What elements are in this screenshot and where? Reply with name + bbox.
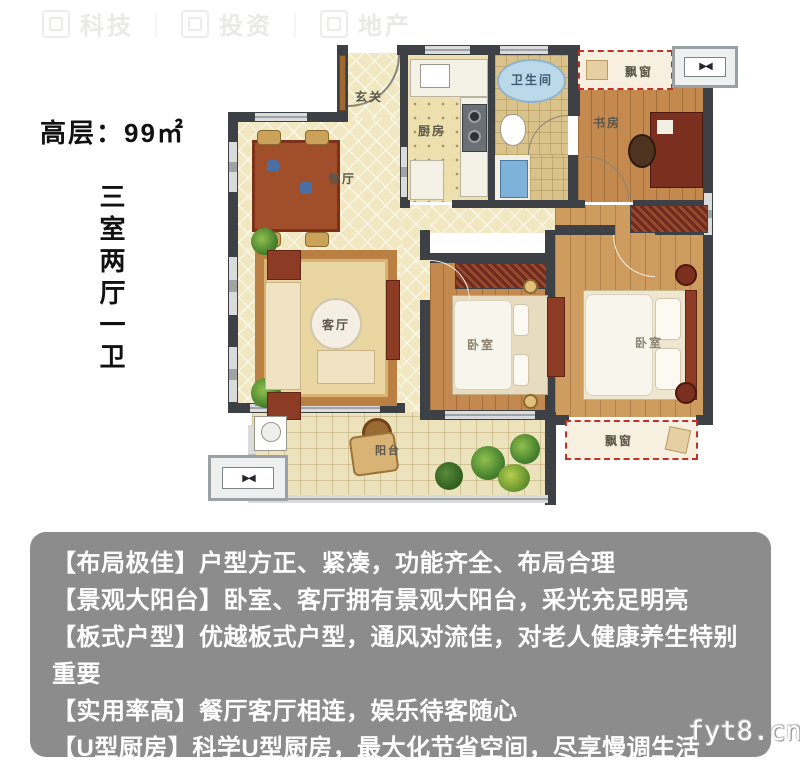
armchair bbox=[267, 250, 301, 280]
pillow bbox=[513, 304, 529, 336]
bedroom-middle-label: 卧室 bbox=[467, 336, 495, 353]
coffee-table bbox=[317, 350, 375, 384]
window bbox=[401, 147, 407, 197]
top-watermark: 科技 ｜ 投资 ｜ 地产 bbox=[42, 6, 412, 41]
wall bbox=[430, 253, 547, 263]
bathroom-label: 卫生间 bbox=[511, 71, 553, 88]
bedside-stool bbox=[675, 382, 697, 404]
bathroom-floor2 bbox=[530, 155, 568, 202]
feature-line: 【实用率高】餐厅客厅相连，娱乐待客随心 bbox=[52, 693, 749, 730]
feature-line: 【U型厨房】科学U型厨房，最大化节省空间，尽享慢调生活 bbox=[52, 730, 749, 767]
bay-window-top-label: 飘窗 bbox=[625, 63, 653, 80]
desk-paper bbox=[657, 120, 673, 134]
pillow bbox=[655, 348, 681, 390]
window bbox=[500, 46, 548, 54]
window bbox=[425, 46, 470, 54]
bedside-lamp bbox=[523, 394, 538, 409]
wall bbox=[488, 55, 495, 202]
page: { "header": { "area_label": "高层：99㎡" }, … bbox=[0, 0, 800, 763]
dining-label: 餐厅 bbox=[328, 170, 356, 187]
stove-burner bbox=[468, 110, 481, 123]
watermark-text: 科技 bbox=[80, 6, 134, 41]
floorplan: 飘窗 飘窗 ▶◀ ▶◀ 客厅 bbox=[205, 42, 721, 510]
table-setting bbox=[267, 160, 279, 172]
watermark-text: 地产 bbox=[358, 6, 412, 41]
plant bbox=[435, 462, 463, 490]
watermark-separator: ｜ bbox=[144, 6, 171, 41]
sofa bbox=[265, 282, 301, 390]
tv-cabinet bbox=[386, 280, 400, 360]
window bbox=[229, 257, 237, 315]
brand-logo-icon bbox=[320, 10, 348, 38]
dining-table bbox=[252, 140, 340, 232]
kitchen-sink bbox=[420, 64, 450, 88]
bay-window-top: 飘窗 bbox=[578, 50, 673, 90]
bedroom-right-label: 卧室 bbox=[635, 334, 663, 351]
watermark-text: 投资 bbox=[219, 6, 273, 41]
washing-machine bbox=[500, 160, 528, 198]
wall bbox=[400, 200, 410, 208]
bedside-lamp bbox=[523, 279, 538, 294]
balcony-label: 阳台 bbox=[375, 442, 401, 458]
plant bbox=[510, 434, 540, 464]
window bbox=[445, 411, 535, 419]
window bbox=[229, 347, 237, 402]
toilet bbox=[500, 114, 526, 146]
wardrobe-right bbox=[630, 205, 708, 233]
area-title: 高层：99㎡ bbox=[40, 113, 185, 150]
living-label: 客厅 bbox=[322, 316, 350, 333]
plant bbox=[498, 464, 530, 492]
site-watermark: fyt8.cn bbox=[688, 716, 800, 747]
study-chair bbox=[628, 134, 656, 168]
wall bbox=[568, 155, 578, 202]
bedside-stool bbox=[675, 264, 697, 286]
living-center-circle: 客厅 bbox=[310, 298, 362, 350]
brand-logo-icon bbox=[42, 10, 70, 38]
wall bbox=[452, 200, 585, 208]
features-panel: 【布局极佳】户型方正、紧凑，功能齐全、布局合理 【景观大阳台】卧室、客厅拥有景观… bbox=[30, 532, 771, 757]
bay-window-bottom: 飘窗 bbox=[565, 420, 698, 460]
fan-icon: ▶◀ bbox=[684, 57, 726, 77]
study-label: 书房 bbox=[593, 114, 621, 131]
entry-door-leaf bbox=[339, 55, 346, 111]
brand-logo-icon bbox=[181, 10, 209, 38]
wall bbox=[420, 230, 430, 260]
bay-window-bottom-label: 飘窗 bbox=[605, 432, 633, 449]
dining-chair bbox=[257, 130, 281, 145]
window bbox=[255, 113, 307, 121]
layout-type-label: 三室两厅一卫 bbox=[93, 183, 130, 375]
fan-icon: ▶◀ bbox=[222, 467, 274, 489]
watermark-separator: ｜ bbox=[283, 6, 310, 41]
table-setting bbox=[300, 182, 312, 194]
window bbox=[229, 142, 237, 192]
feature-line: 【板式户型】优越板式户型，通风对流佳，对老人健康养生特别重要 bbox=[52, 619, 749, 693]
dining-chair bbox=[305, 232, 329, 247]
wall bbox=[555, 225, 615, 235]
wardrobe-tall bbox=[547, 297, 565, 377]
wall bbox=[420, 300, 430, 420]
stove-burner bbox=[468, 130, 481, 143]
ac-platform-top: ▶◀ bbox=[672, 46, 738, 88]
feature-line: 【景观大阳台】卧室、客厅拥有景观大阳台，采光充足明亮 bbox=[52, 582, 749, 619]
wall bbox=[696, 415, 713, 425]
basin-bowl bbox=[261, 422, 281, 442]
ac-platform-bottom: ▶◀ bbox=[208, 455, 288, 501]
balcony-glass-bottom bbox=[248, 495, 548, 503]
bay-furniture-sketch bbox=[586, 60, 608, 80]
wall bbox=[545, 412, 556, 505]
dining-chair bbox=[305, 130, 329, 145]
pillow bbox=[513, 354, 529, 386]
bay-chair-sketch bbox=[665, 426, 692, 454]
feature-line: 【布局极佳】户型方正、紧凑，功能齐全、布局合理 bbox=[52, 545, 749, 582]
kitchen-label: 厨房 bbox=[418, 122, 446, 139]
wall bbox=[703, 84, 713, 425]
entry-label: 玄关 bbox=[355, 88, 383, 105]
kitchen-counter-bottom bbox=[410, 160, 444, 200]
